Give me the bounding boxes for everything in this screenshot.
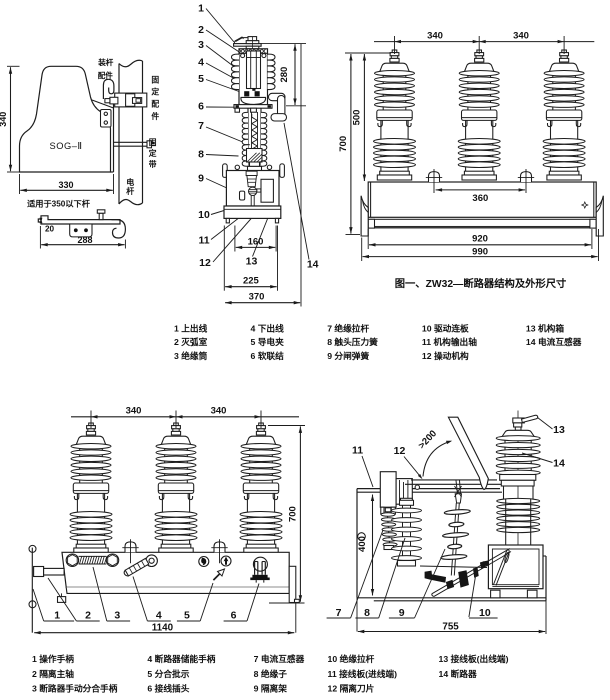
svg-text:7 绝缘拉杆: 7 绝缘拉杆 bbox=[327, 322, 369, 333]
svg-text:9: 9 bbox=[198, 173, 204, 185]
svg-text:6: 6 bbox=[198, 101, 204, 113]
svg-text:360: 360 bbox=[472, 193, 488, 204]
svg-text:12: 12 bbox=[199, 257, 211, 269]
svg-text:280: 280 bbox=[279, 67, 290, 83]
svg-text:1: 1 bbox=[54, 610, 60, 622]
svg-text:10 驱动连板: 10 驱动连板 bbox=[422, 322, 469, 333]
svg-text:8 绝缘子: 8 绝缘子 bbox=[254, 668, 288, 679]
svg-text:14 电流互感器: 14 电流互感器 bbox=[526, 336, 582, 347]
svg-text:370: 370 bbox=[249, 292, 265, 303]
svg-text:3 绝缘筒: 3 绝缘筒 bbox=[174, 350, 208, 361]
svg-text:装杆: 装杆 bbox=[97, 57, 114, 67]
svg-text:1140: 1140 bbox=[152, 623, 174, 634]
svg-text:12 操动机构: 12 操动机构 bbox=[422, 350, 469, 361]
svg-text:13 机构箱: 13 机构箱 bbox=[526, 322, 564, 333]
svg-text:7: 7 bbox=[336, 607, 342, 619]
svg-text:11: 11 bbox=[198, 234, 209, 246]
svg-text:14: 14 bbox=[307, 258, 319, 270]
svg-text:2 灭弧室: 2 灭弧室 bbox=[174, 336, 208, 347]
svg-text:固: 固 bbox=[149, 138, 157, 147]
svg-text:9 隔离架: 9 隔离架 bbox=[254, 683, 288, 694]
svg-text:755: 755 bbox=[442, 621, 459, 632]
svg-text:14 断路器: 14 断路器 bbox=[439, 668, 477, 679]
svg-text:4: 4 bbox=[198, 57, 204, 69]
svg-text:8 触头压力簧: 8 触头压力簧 bbox=[327, 336, 378, 347]
svg-text:12: 12 bbox=[394, 445, 406, 457]
svg-text:5: 5 bbox=[184, 610, 190, 622]
svg-text:4: 4 bbox=[156, 610, 162, 622]
svg-text:件: 件 bbox=[151, 111, 159, 121]
svg-text:1 上出线: 1 上出线 bbox=[174, 322, 208, 333]
svg-text:图一、ZW32—断路器结构及外形尺寸: 图一、ZW32—断路器结构及外形尺寸 bbox=[395, 277, 567, 290]
svg-text:8: 8 bbox=[364, 607, 370, 619]
svg-text:3: 3 bbox=[198, 39, 204, 51]
svg-text:固: 固 bbox=[151, 75, 159, 84]
svg-text:7 电流互感器: 7 电流互感器 bbox=[254, 653, 305, 664]
svg-text:14: 14 bbox=[553, 457, 565, 469]
svg-text:20: 20 bbox=[45, 225, 55, 234]
svg-text:4 下出线: 4 下出线 bbox=[251, 322, 285, 333]
svg-text:11: 11 bbox=[352, 445, 363, 457]
svg-text:1 操作手柄: 1 操作手柄 bbox=[32, 653, 74, 664]
svg-text:配件: 配件 bbox=[98, 70, 114, 80]
svg-text:带: 带 bbox=[149, 159, 157, 169]
svg-text:4 断路器储能手柄: 4 断路器储能手柄 bbox=[147, 653, 215, 664]
svg-text:340: 340 bbox=[126, 406, 142, 417]
svg-text:990: 990 bbox=[472, 247, 488, 258]
svg-text:225: 225 bbox=[243, 276, 260, 287]
svg-text:2: 2 bbox=[85, 610, 91, 622]
svg-text:9: 9 bbox=[399, 607, 405, 619]
svg-text:10 绝缘拉杆: 10 绝缘拉杆 bbox=[328, 653, 375, 664]
svg-text:SOG–Ⅱ: SOG–Ⅱ bbox=[50, 141, 83, 151]
svg-text:160: 160 bbox=[248, 236, 264, 247]
svg-text:3 断路器手动分合手柄: 3 断路器手动分合手柄 bbox=[32, 683, 118, 694]
svg-text:340: 340 bbox=[211, 406, 227, 417]
svg-text:配: 配 bbox=[151, 100, 159, 109]
svg-text:330: 330 bbox=[58, 180, 73, 190]
svg-text:8: 8 bbox=[198, 149, 204, 161]
svg-text:13: 13 bbox=[553, 424, 565, 436]
svg-text:5 分合批示: 5 分合批示 bbox=[147, 668, 189, 679]
svg-text:13 接线板(出线端): 13 接线板(出线端) bbox=[439, 653, 509, 664]
svg-text:340: 340 bbox=[513, 31, 529, 42]
svg-text:适用于350以下杆: 适用于350以下杆 bbox=[27, 199, 91, 209]
svg-text:13: 13 bbox=[246, 256, 258, 268]
svg-text:3: 3 bbox=[114, 610, 120, 622]
svg-text:10: 10 bbox=[198, 209, 210, 221]
svg-text:6 软联结: 6 软联结 bbox=[251, 350, 285, 361]
svg-text:10: 10 bbox=[479, 607, 491, 619]
svg-text:定: 定 bbox=[148, 148, 157, 158]
svg-text:5: 5 bbox=[198, 73, 204, 85]
svg-text:6 接线插头: 6 接线插头 bbox=[147, 683, 189, 694]
svg-text:288: 288 bbox=[77, 235, 92, 245]
svg-text:500: 500 bbox=[352, 110, 363, 126]
svg-text:340: 340 bbox=[427, 31, 443, 42]
svg-text:11 机构输出轴: 11 机构输出轴 bbox=[422, 336, 477, 347]
svg-text:11 接线板(进线端): 11 接线板(进线端) bbox=[328, 668, 398, 679]
svg-text:920: 920 bbox=[472, 234, 488, 245]
svg-text:700: 700 bbox=[338, 136, 349, 152]
svg-text:340: 340 bbox=[0, 112, 8, 127]
svg-text:2: 2 bbox=[198, 24, 204, 36]
svg-text:电: 电 bbox=[126, 177, 134, 187]
svg-text:2 隔离主轴: 2 隔离主轴 bbox=[32, 668, 74, 679]
svg-text:6: 6 bbox=[231, 610, 237, 622]
svg-text:400: 400 bbox=[357, 536, 368, 552]
svg-text:杆: 杆 bbox=[126, 186, 134, 196]
svg-text:9 分闸弹簧: 9 分闸弹簧 bbox=[327, 350, 369, 361]
svg-text:7: 7 bbox=[198, 120, 204, 132]
svg-text:1: 1 bbox=[198, 3, 204, 15]
svg-text:5 导电夹: 5 导电夹 bbox=[251, 336, 285, 347]
svg-text:700: 700 bbox=[287, 506, 298, 522]
svg-text:定: 定 bbox=[150, 87, 159, 97]
svg-text:12 隔离刀片: 12 隔离刀片 bbox=[328, 683, 375, 694]
